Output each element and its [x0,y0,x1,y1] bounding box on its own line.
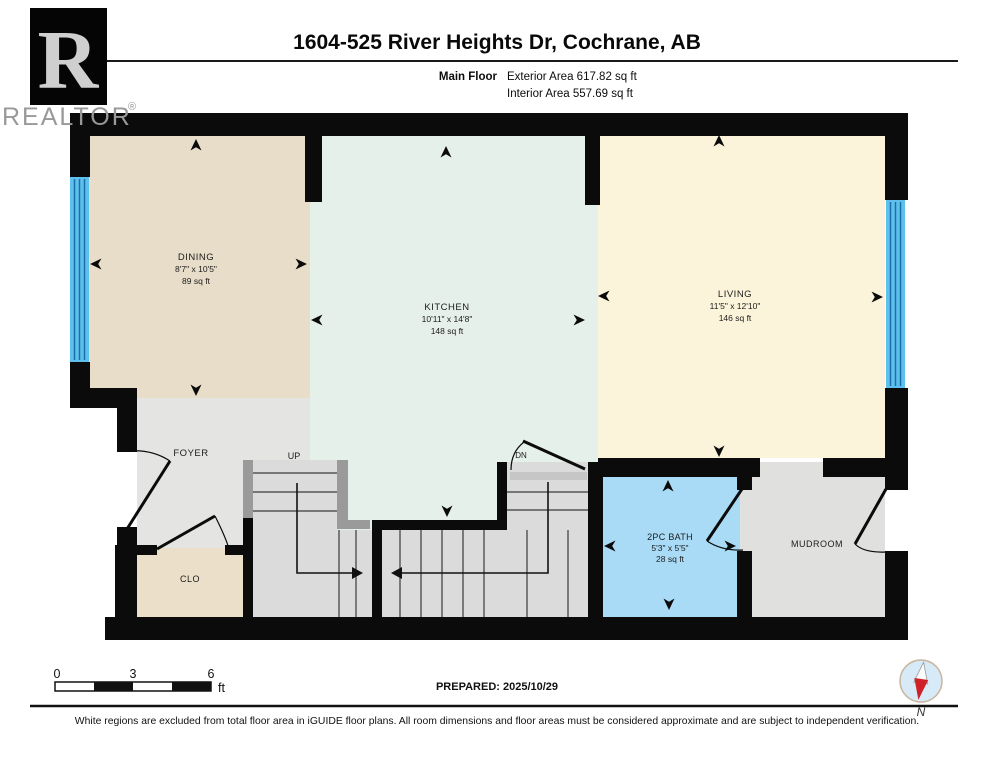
realtor-logo: R REALTOR ® [2,8,136,131]
interior-area-label: Interior Area 557.69 sq ft [507,88,634,100]
room-name: KITCHEN [424,302,469,313]
stairs-lower-run [382,530,588,618]
window-right [886,200,905,388]
header: 1604-525 River Heights Dr, Cochrane, AB … [35,31,958,100]
realtor-logo-r-icon: R [38,14,100,107]
wall-top [75,113,908,136]
scale-tick-0: 0 [54,667,61,681]
floor-plan-canvas: 1604-525 River Heights Dr, Cochrane, AB … [0,0,993,768]
room-area: 146 sq ft [719,313,752,323]
room-dims: 8'7" x 10'5" [175,264,217,274]
foyer-label: FOYER [173,448,208,459]
room-dims: 10'11" x 14'8" [422,314,473,324]
stair-rail-right [337,460,348,520]
compass-icon: N [900,660,942,719]
room-area: 28 sq ft [656,554,685,564]
wall-bath-mudroom-upper [737,477,752,490]
room-dims: 11'5" x 12'10" [710,301,761,311]
wall-foyer-left-upper [117,408,137,452]
wall-closet-top-left [137,545,157,555]
room-dims: 5'3" x 5'5" [651,543,688,553]
room-foyer-floor [137,398,310,460]
wall-right-mid [885,388,908,490]
room-area: 89 sq ft [182,276,211,286]
wall-dining-kitchen [305,113,322,202]
wall-step [70,388,137,408]
scale-bar-segment [94,682,133,691]
exterior-area-label: Exterior Area 617.82 sq ft [507,71,638,83]
wall-closet-right [243,518,253,618]
scale-tick-6: 6 [208,667,215,681]
room-name: DINING [178,252,214,263]
mudroom-label: MUDROOM [791,539,843,549]
disclaimer-text: White regions are excluded from total fl… [75,716,919,727]
room-foyer-floor-lower [137,460,243,548]
stairs-up-flight [253,460,337,530]
scale-unit-label: ft [218,681,225,695]
prepared-date: PREPARED: 2025/10/29 [436,681,558,693]
up-label: UP [288,451,301,461]
wall-living-bottom-left [598,458,760,477]
scale-bar-segment [172,682,211,691]
floor-plan-page: 1604-525 River Heights Dr, Cochrane, AB … [0,0,993,768]
floor-label: Main Floor [439,71,498,83]
wall-bottom [105,617,908,640]
room-area: 148 sq ft [431,326,464,336]
closet-label: CLO [180,574,200,584]
wall-stair-bath [588,462,603,618]
registered-mark-icon: ® [128,101,136,113]
wall-stair-divider [372,520,382,618]
page-title: 1604-525 River Heights Dr, Cochrane, AB [293,31,701,54]
wall-kitchen-stair [382,520,497,530]
dn-label: DN [515,451,527,460]
room-name: 2PC BATH [647,532,693,542]
wall-right-lower [885,551,908,640]
room-name: LIVING [718,289,752,300]
wall-right-upper [885,113,908,200]
wall-bath-mudroom-lower [737,551,752,618]
footer: 0 3 6 ft PREPARED: 2025/10/29 N White re… [30,660,958,727]
wall-kitchen-living [585,113,600,205]
wall-dn-left [497,462,507,530]
stairs-dn-threshold [510,472,587,480]
window-left [70,177,89,362]
stair-rail-left [243,460,253,518]
scale-tick-3: 3 [130,667,137,681]
stair-rail-foot [337,520,370,529]
wall-living-bottom-right [823,458,885,477]
realtor-wordmark: REALTOR [2,103,132,131]
scale-bar: 0 3 6 ft [54,667,226,695]
